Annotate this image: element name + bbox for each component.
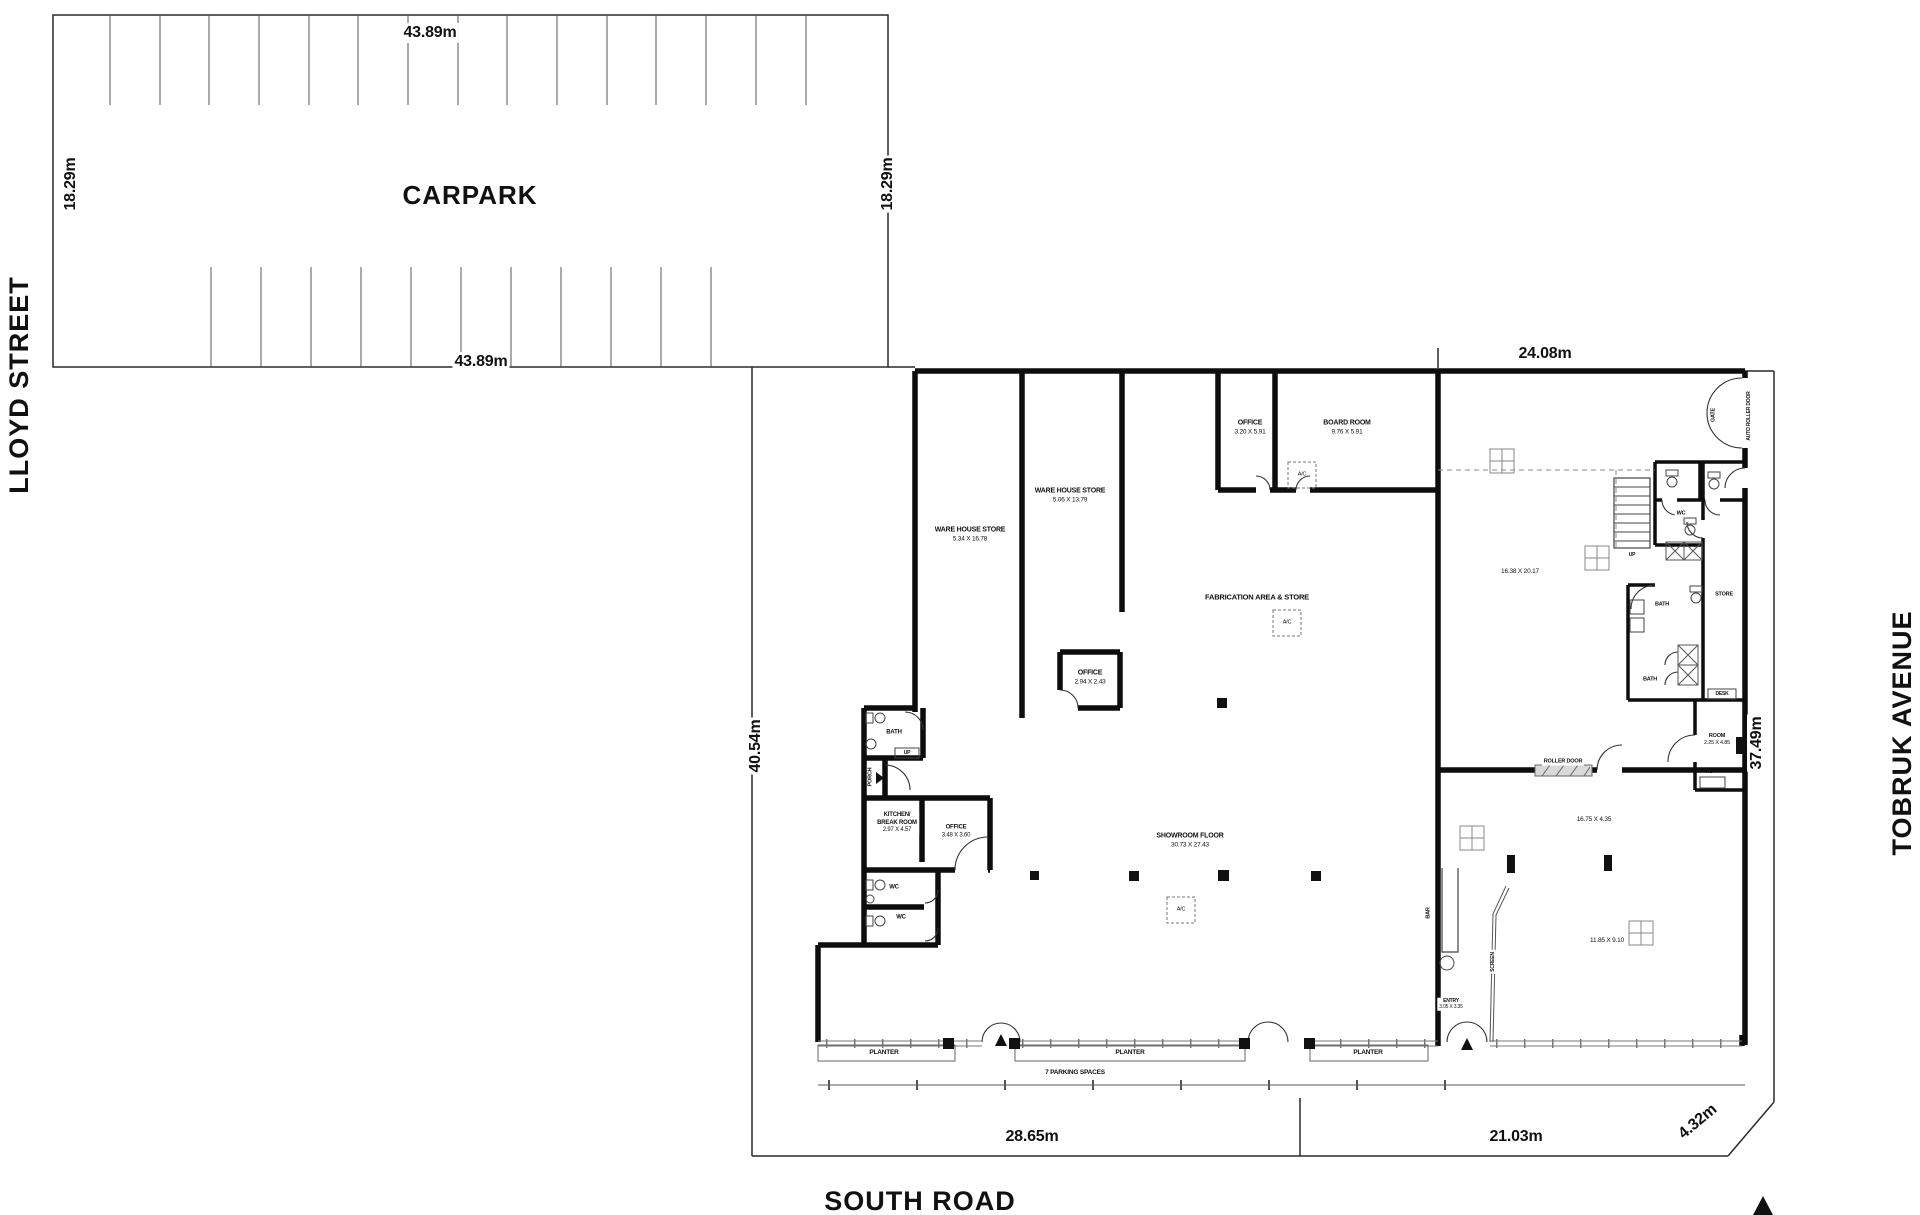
roller-door-label: ROLLER DOOR — [1542, 759, 1584, 766]
dim-bottom-right: 21.03m — [1487, 1127, 1544, 1147]
room-label-bath-right-upper: BATH — [1653, 602, 1671, 609]
toilet-icon — [1685, 525, 1695, 535]
toilet-icon — [875, 880, 885, 890]
screen-label: SCREEN — [1490, 950, 1496, 974]
ac-label: A/C — [1296, 472, 1309, 479]
wall-pier — [943, 1038, 954, 1049]
room-label-fabrication: FABRICATION AREA & STORE — [1203, 592, 1311, 601]
columns — [1030, 698, 1746, 881]
room-label-bath-right-lower: BATH — [1641, 677, 1659, 684]
column — [1030, 871, 1039, 880]
planter-label: PLANTER — [1113, 1049, 1146, 1057]
room-dims: 2.97 X 4.57 — [877, 827, 917, 835]
column — [1129, 871, 1139, 881]
shower-cubicles — [1666, 542, 1702, 685]
carpark-dim-right: 18.29m — [878, 155, 898, 212]
plan-geometry — [0, 0, 1920, 1215]
room-label-showroom: SHOWROOM FLOOR 30.73 X 27.43 — [1154, 833, 1225, 850]
room-label-right: ROOM 2.25 X 4.85 — [1702, 733, 1732, 747]
auto-roller-door-label: AUTO ROLLER DOOR — [1746, 389, 1752, 442]
room-name: BOARD ROOM — [1323, 420, 1370, 429]
ac-label: A/C — [1175, 907, 1188, 914]
ac-boxes — [1167, 462, 1316, 923]
street-label-south-road: SOUTH ROAD — [822, 1185, 1018, 1215]
planter-label: PLANTER — [1351, 1049, 1384, 1057]
room-label-office-top: OFFICE 3.20 X 5.91 — [1232, 420, 1267, 437]
room-label-wc-bottom: WC — [894, 914, 908, 922]
room-name: OFFICE — [942, 825, 971, 833]
room-label-board-room: BOARD ROOM 9.76 X 5.91 — [1321, 420, 1372, 437]
room-name: ROOM — [1704, 733, 1730, 740]
up-label-right: UP — [1627, 552, 1638, 558]
wall-pier — [1009, 1038, 1020, 1049]
planter-label: PLANTER — [867, 1049, 900, 1057]
room-name: WARE HOUSE STORE — [1035, 488, 1106, 497]
bar-label: BAR — [1426, 905, 1433, 920]
carpark-title: CARPARK — [400, 179, 539, 212]
carpark-dim-top: 43.89m — [401, 23, 458, 43]
street-label-tobruk: TOBRUK AVENUE — [1886, 608, 1920, 857]
dashed-lines — [1438, 470, 1655, 548]
parking-spaces-label: 7 PARKING SPACES — [1043, 1069, 1107, 1077]
room-label-store: STORE — [1713, 592, 1735, 599]
room-label-warehouse2: WARE HOUSE STORE 5.06 X 13.79 — [1033, 488, 1108, 505]
toilet-icon — [1709, 479, 1719, 489]
room-label-kitchen: KITCHEN/ BREAK ROOM 2.97 X 4.57 — [875, 812, 919, 835]
room-dims: 5.34 X 16.78 — [935, 535, 1006, 543]
toilet-icon — [1708, 472, 1720, 478]
column — [1311, 871, 1321, 881]
toilet-icon — [875, 916, 885, 926]
vanity-icon — [1630, 618, 1644, 632]
dim-left: 40.54m — [746, 717, 766, 774]
stairs-treads — [1614, 487, 1650, 541]
wall-pier — [1304, 1038, 1315, 1049]
toilet-icon — [866, 916, 873, 926]
carpark-dim-bottom: 43.89m — [452, 352, 509, 372]
room-label-office-small: OFFICE 2.94 X 2.43 — [1072, 670, 1107, 687]
room-name: SHOWROOM FLOOR — [1156, 833, 1223, 842]
dim-right: 37.49m — [1747, 714, 1767, 771]
dim-bottom-left: 28.65m — [1003, 1127, 1060, 1147]
room-dims: 2.25 X 4.85 — [1704, 740, 1730, 747]
ac-unit-box — [1700, 777, 1725, 788]
column — [1507, 855, 1515, 873]
dim-top-right: 24.08m — [1516, 344, 1573, 364]
entry-label: ENTRY 3.05 X 3.35 — [1437, 998, 1464, 1011]
area-dims-lower-right: 11.85 X 9.10 — [1588, 937, 1626, 945]
room-name: OFFICE — [1074, 670, 1105, 679]
north-arrow-icon — [1753, 1196, 1773, 1215]
toilet-icon — [1691, 593, 1701, 603]
toilet-icon — [866, 880, 873, 890]
room-name: WARE HOUSE STORE — [935, 527, 1006, 536]
room-label-warehouse1: WARE HOUSE STORE 5.34 X 16.78 — [933, 527, 1008, 544]
room-name: BREAK ROOM — [877, 819, 917, 827]
toilet-icon — [1690, 586, 1702, 592]
room-label-bath-left: BATH — [884, 729, 903, 737]
stairs-outline — [1614, 478, 1650, 548]
room-dims: 5.06 X 13.79 — [1035, 496, 1106, 504]
toilet-icon — [875, 713, 885, 723]
room-dims: 30.73 X 27.43 — [1156, 841, 1223, 849]
area-dims-upper-right: 16.38 X 20.17 — [1499, 568, 1541, 576]
ac-label: A/C — [1281, 620, 1294, 627]
stairs — [1614, 478, 1650, 548]
up-label-left: UP — [902, 750, 913, 756]
toilet-icon — [1667, 477, 1677, 487]
bar-counter — [1440, 868, 1458, 970]
ac-unit-label: AC — [1704, 769, 1715, 775]
room-name: OFFICE — [1234, 420, 1265, 429]
wall-pier — [1736, 737, 1746, 754]
sink-icon — [866, 739, 876, 749]
carpark-dim-left: 18.29m — [61, 155, 81, 212]
toilet-icon — [1684, 518, 1696, 524]
floor-plan: LLOYD STREET SOUTH ROAD TOBRUK AVENUE CA… — [0, 0, 1920, 1215]
room-label-office-mid: OFFICE 3.48 X 3.60 — [940, 825, 973, 840]
room-dims: 2.94 X 2.43 — [1074, 678, 1105, 686]
column — [1217, 698, 1227, 708]
column — [1604, 855, 1612, 871]
room-dims: 9.76 X 5.91 — [1323, 428, 1370, 436]
sink-icon — [866, 895, 874, 903]
area-dims-mid-right: 16.75 X 4.35 — [1575, 816, 1613, 824]
desk-label: DESK — [1713, 691, 1730, 697]
room-label-porch: PORCH — [868, 766, 875, 789]
bar-stool-icon — [1440, 956, 1454, 970]
gate-label: GATE — [1711, 406, 1718, 424]
column — [1218, 870, 1229, 881]
shopfront-glazing — [818, 1041, 1742, 1046]
room-dims: 3.05 X 3.35 — [1439, 1004, 1462, 1010]
door-marker — [995, 1034, 1007, 1046]
room-name: KITCHEN/ — [877, 812, 917, 820]
toilet-icon — [1666, 470, 1678, 476]
room-dims: 3.20 X 5.91 — [1234, 428, 1265, 436]
room-dims: 3.48 X 3.60 — [942, 832, 971, 840]
room-label-wc-right: WC — [1675, 511, 1688, 518]
toilet-icon — [866, 713, 873, 723]
entry-door-marker — [1461, 1038, 1473, 1050]
wall-pier — [1239, 1038, 1250, 1049]
room-label-wc-top: WC — [887, 884, 901, 892]
bar-counter-outline — [1442, 868, 1458, 952]
roller-door-hatch — [1535, 765, 1592, 776]
street-label-lloyd: LLOYD STREET — [3, 274, 37, 496]
